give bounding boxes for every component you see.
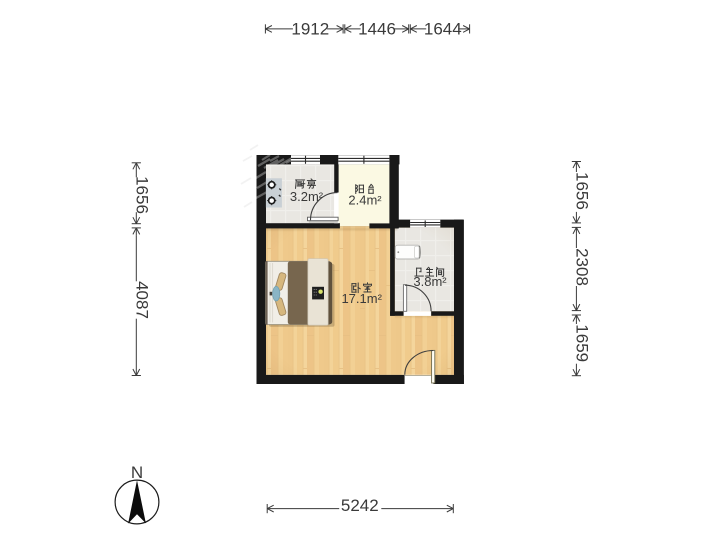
svg-text:1446: 1446 xyxy=(358,20,396,39)
svg-text:4087: 4087 xyxy=(132,281,151,319)
svg-text:1644: 1644 xyxy=(424,20,462,39)
svg-text:2308: 2308 xyxy=(572,248,591,286)
svg-text:3.2m²: 3.2m² xyxy=(290,189,324,204)
svg-text:N: N xyxy=(131,463,143,482)
svg-text:17.1m²: 17.1m² xyxy=(341,291,382,306)
svg-text:5242: 5242 xyxy=(341,496,379,515)
svg-text:1656: 1656 xyxy=(572,172,591,210)
svg-text:1659: 1659 xyxy=(572,324,591,362)
svg-text:1656: 1656 xyxy=(132,176,151,214)
svg-text:2.4m²: 2.4m² xyxy=(348,192,382,207)
svg-text:3.8m²: 3.8m² xyxy=(413,274,447,289)
svg-text:1912: 1912 xyxy=(291,20,329,39)
